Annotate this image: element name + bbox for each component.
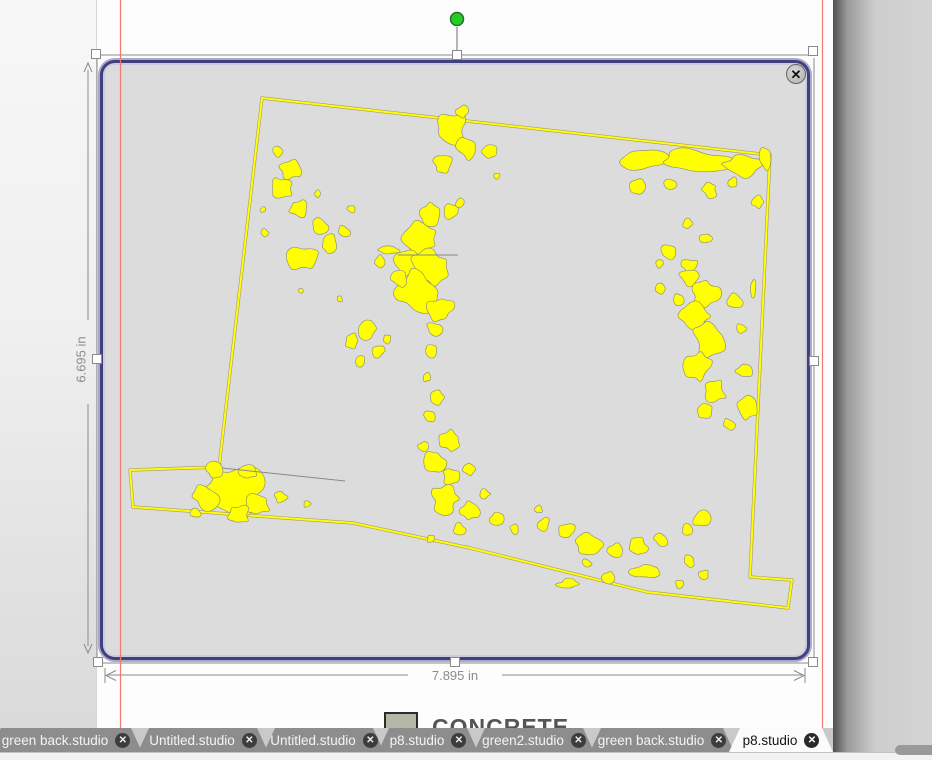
trace-blob	[345, 333, 358, 349]
trace-blob	[358, 320, 376, 340]
trace-blob	[654, 533, 668, 546]
trace-blob	[684, 555, 694, 568]
trace-blob	[737, 396, 757, 421]
trace-blob	[261, 229, 269, 237]
trace-blob	[272, 178, 292, 198]
selection-height-label: 6.695 in	[74, 320, 89, 400]
trace-blob	[459, 501, 480, 520]
trace-blob	[339, 225, 351, 236]
tab-close-icon[interactable]: ✕	[115, 733, 130, 748]
trace-blob	[304, 501, 311, 507]
trace-blob	[463, 464, 476, 476]
tab-label: green2.studio	[482, 733, 564, 748]
trace-blob	[423, 372, 430, 381]
trace-blob	[698, 570, 708, 579]
trace-blob	[289, 200, 307, 218]
trace-blob	[378, 246, 401, 254]
trace-blob	[750, 279, 756, 298]
trace-blob	[494, 173, 500, 179]
trace-blob	[356, 356, 365, 368]
document-tab-p8-studio[interactable]: p8.studio✕	[729, 728, 833, 752]
tab-close-icon[interactable]: ✕	[571, 733, 586, 748]
trace-blob	[575, 532, 603, 554]
tab-close-icon[interactable]: ✕	[451, 733, 466, 748]
trace-blob	[453, 522, 466, 535]
trace-blob	[439, 429, 460, 451]
document-tab-green-back-studio[interactable]: green back.studio✕	[0, 728, 142, 752]
trace-blob	[751, 195, 764, 209]
trace-blob	[372, 346, 385, 358]
tab-label: Untitled.studio	[270, 733, 356, 748]
trace-blob	[629, 537, 648, 554]
document-tab-green2-studio[interactable]: green2.studio✕	[474, 728, 594, 752]
trace-blob	[664, 179, 677, 189]
trace-blob	[426, 299, 454, 322]
trace-blob	[510, 524, 518, 535]
trace-blob	[273, 146, 283, 157]
trace-blob	[427, 323, 443, 337]
selection-handle[interactable]	[453, 51, 462, 60]
trace-blob	[699, 234, 712, 243]
document-tab-untitled-studio[interactable]: Untitled.studio✕	[264, 728, 384, 752]
trace-blob	[735, 364, 753, 376]
horizontal-scrollbar-thumb[interactable]	[895, 745, 932, 755]
trace-blob	[702, 182, 717, 198]
trace-blob	[260, 207, 266, 213]
trace-blob	[534, 505, 542, 512]
tab-label: p8.studio	[743, 733, 798, 748]
trace-blob	[337, 296, 342, 302]
trace-blob	[480, 489, 491, 499]
trace-blob	[661, 245, 676, 260]
trace-blob	[279, 159, 302, 179]
trace-blob	[656, 260, 664, 268]
trace-blob	[431, 484, 459, 515]
selection-handle[interactable]	[451, 658, 460, 667]
workspace: ✕ 6.695 in 7.895 in CONCRETE green back.…	[0, 0, 932, 760]
tab-close-icon[interactable]: ✕	[363, 733, 378, 748]
close-selection-button[interactable]: ✕	[786, 64, 806, 84]
trace-blob	[682, 524, 692, 536]
selection-handle[interactable]	[809, 658, 818, 667]
trace-blob	[674, 294, 685, 306]
trace-blob	[683, 218, 693, 228]
document-tab-p8-studio[interactable]: p8.studio✕	[378, 728, 478, 752]
document-tab-green-back-studio[interactable]: green back.studio✕	[590, 728, 734, 752]
trace-blob	[190, 508, 201, 517]
trace-blob	[698, 403, 712, 418]
tab-label: Untitled.studio	[149, 733, 235, 748]
trace-blob	[374, 254, 385, 268]
trace-blob	[245, 493, 269, 513]
selection-handle[interactable]	[809, 47, 818, 56]
trace-blob	[537, 517, 549, 531]
trace-blob	[489, 512, 504, 525]
selection-handle[interactable]	[94, 658, 103, 667]
tab-label: green back.studio	[598, 733, 705, 748]
trace-blob	[705, 380, 726, 403]
trace-blob	[737, 324, 747, 334]
trace-blob	[620, 150, 670, 170]
tab-label: green back.studio	[2, 733, 109, 748]
traced-artwork[interactable]	[130, 98, 792, 608]
trace-blob	[431, 390, 445, 405]
trace-blob	[322, 234, 336, 254]
trace-blob	[424, 411, 435, 422]
trace-blob	[728, 177, 737, 187]
trace-blob	[314, 190, 321, 198]
status-strip	[0, 752, 932, 760]
trace-blob	[759, 147, 771, 170]
trace-blob	[481, 145, 497, 159]
tab-close-icon[interactable]: ✕	[804, 733, 819, 748]
selection-handle[interactable]	[92, 50, 101, 59]
trace-blob	[313, 218, 329, 235]
selection-handle[interactable]	[810, 357, 819, 366]
selection-handle[interactable]	[93, 355, 102, 364]
trace-blob	[418, 442, 429, 452]
tab-close-icon[interactable]: ✕	[242, 733, 257, 748]
trace-blob	[347, 206, 355, 213]
trace-blob	[629, 564, 661, 577]
trace-blob	[426, 345, 437, 358]
trace-blob	[723, 419, 735, 431]
trace-blob	[727, 293, 743, 308]
selection-width-label: 7.895 in	[410, 668, 500, 683]
canvas-overlay	[0, 0, 932, 728]
trace-blob	[206, 461, 223, 478]
tab-label: p8.studio	[390, 733, 445, 748]
trace-blob	[424, 452, 447, 472]
trace-blob	[433, 156, 453, 174]
tab-close-icon[interactable]: ✕	[711, 733, 726, 748]
trace-blob	[607, 543, 623, 558]
trace-blob	[444, 469, 460, 485]
trace-blob	[274, 491, 288, 502]
trace-blob	[655, 283, 665, 294]
trace-blob	[456, 138, 476, 161]
trace-blob	[390, 270, 406, 287]
trace-blob	[582, 559, 592, 567]
trace-blob	[693, 510, 711, 526]
trace-blob	[559, 524, 575, 538]
trace-blob	[455, 198, 464, 208]
trace-blob	[383, 335, 391, 344]
trace-blob	[298, 288, 303, 293]
trace-blob	[602, 571, 615, 584]
rotate-handle-icon[interactable]	[451, 13, 464, 26]
trace-blob	[676, 580, 684, 588]
trace-blob	[428, 535, 435, 542]
trace-blob	[630, 179, 646, 195]
document-tab-untitled-studio[interactable]: Untitled.studio✕	[138, 728, 268, 752]
trace-blob	[286, 247, 318, 270]
trace-blob	[555, 578, 579, 588]
